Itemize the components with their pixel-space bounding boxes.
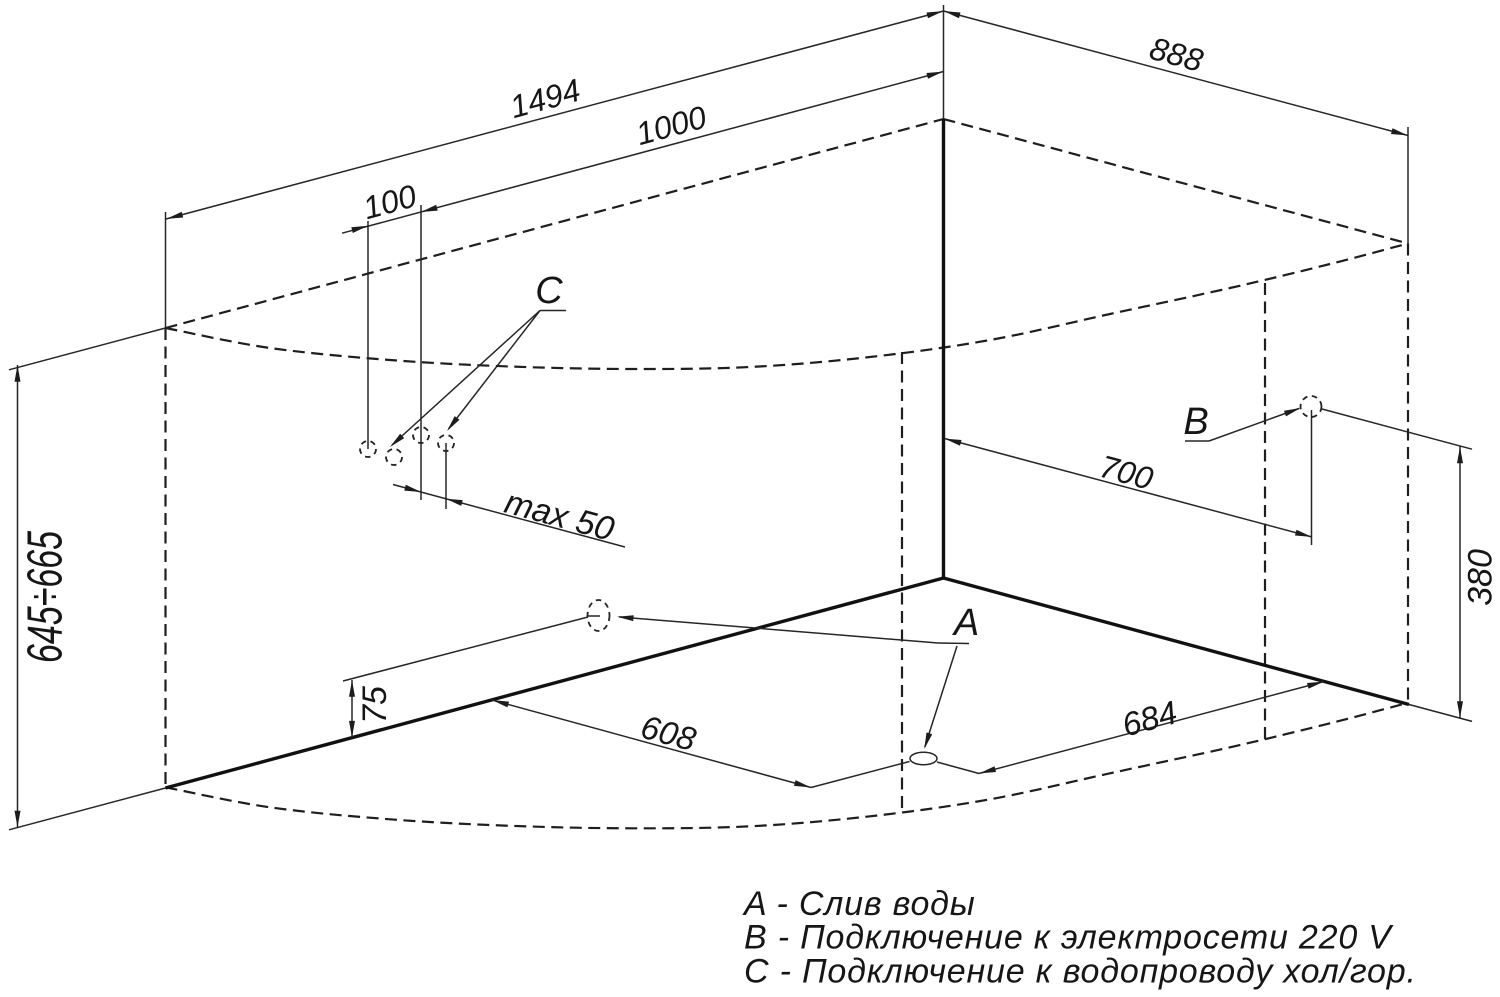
svg-text:A: A <box>952 602 979 644</box>
svg-text:C: C <box>535 270 563 312</box>
svg-text:608: 608 <box>637 708 700 758</box>
svg-text:max 50: max 50 <box>501 483 619 549</box>
svg-text:C - Подключение к водопроводу: C - Подключение к водопроводу хол/гор. <box>744 953 1417 991</box>
svg-text:B - Подключение к электросети: B - Подключение к электросети 220 V <box>744 919 1394 957</box>
svg-text:645÷665: 645÷665 <box>17 531 72 663</box>
svg-text:A - Слив воды: A - Слив воды <box>742 885 976 923</box>
svg-text:700: 700 <box>1096 448 1157 497</box>
svg-text:100: 100 <box>359 177 420 226</box>
svg-text:380: 380 <box>1462 549 1500 606</box>
svg-text:684: 684 <box>1118 693 1181 743</box>
svg-text:75: 75 <box>356 686 394 724</box>
svg-text:888: 888 <box>1146 30 1207 79</box>
svg-text:B: B <box>1183 401 1208 443</box>
